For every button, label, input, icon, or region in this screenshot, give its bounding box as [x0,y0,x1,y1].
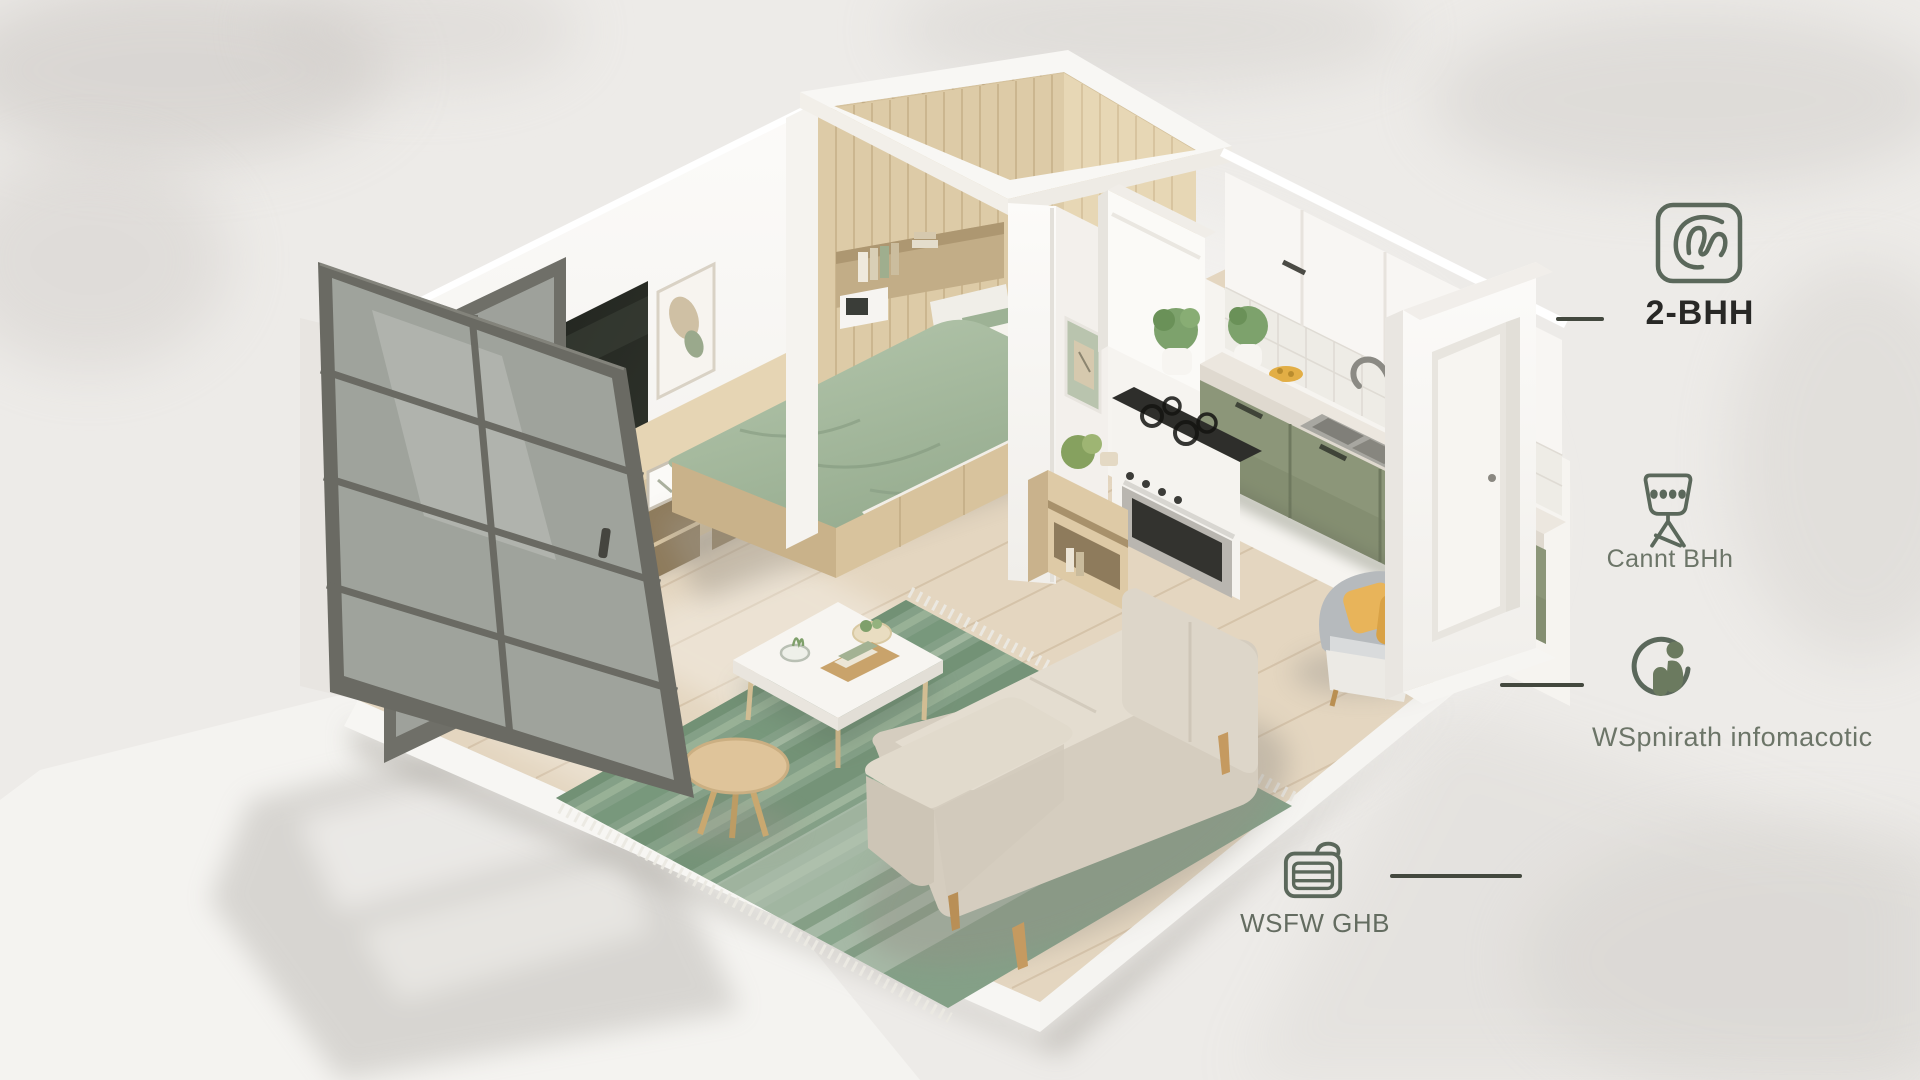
squiggle-monogram-icon [1652,198,1748,290]
connector-line [1390,874,1522,878]
annotation-label: WSFW GHB [1240,908,1390,939]
stool-top [684,739,788,793]
annotation-label: 2-BHH [1630,294,1770,333]
door-handle [1488,474,1496,482]
infographic-canvas: 2-BHH Cannt BHh WSpnirath infomacotic [0,0,1920,1080]
person-in-circle-icon [1628,636,1698,708]
apartment-isometric-render [0,0,1920,1080]
doorway-wall [1385,262,1556,704]
nook-left-post-wall [786,102,818,549]
green-mat-frame [1066,318,1100,412]
planter-stand-icon [1638,468,1698,554]
connector-line [1556,317,1604,321]
wallet-icon [1280,838,1348,902]
doorway-opening [1432,317,1520,642]
door-panel [1438,334,1500,632]
annotation-label: Cannt BHh [1570,545,1770,574]
annotation-label: WSpnirath infomacotic [1592,722,1902,753]
connector-line [1500,683,1584,687]
stool-leg [732,790,736,838]
